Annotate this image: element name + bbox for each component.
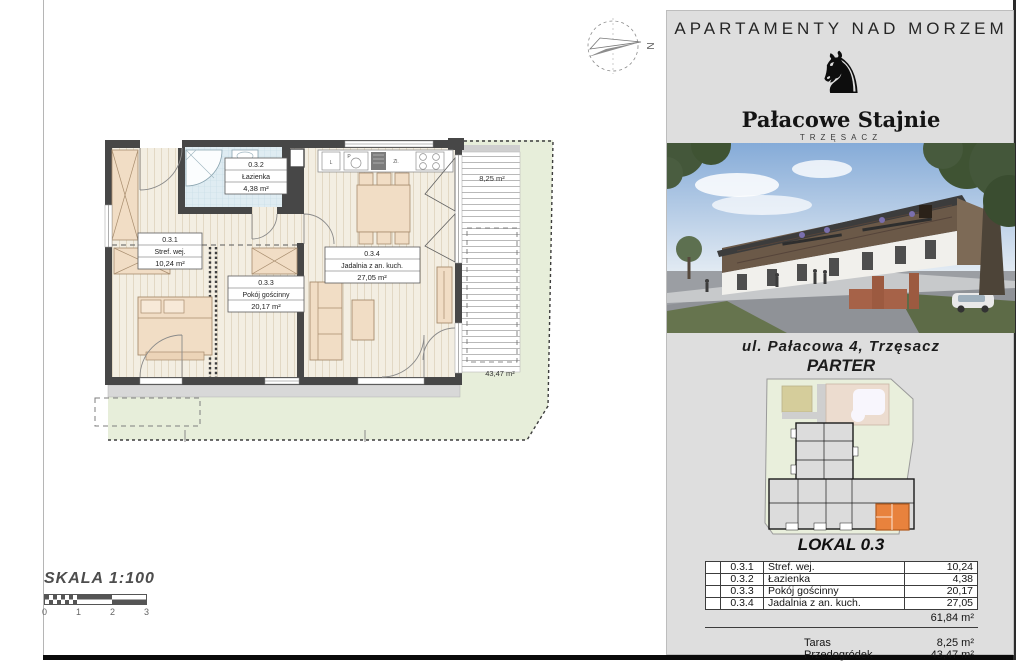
room-name: Stref. wej. (154, 249, 185, 256)
site-plan (756, 375, 921, 535)
siteplan-road-h (782, 412, 826, 419)
extra-label: Taras (804, 637, 937, 649)
room-label-0-3-1: 0.3.1 Stref. wej. 10,24 m² (138, 233, 202, 269)
project-title: APARTAMENTY NAD MORZEM (667, 19, 1015, 39)
outdoor-areas: Taras 8,25 m² Przedogródek 43,47 m² (705, 637, 978, 661)
row-name: Jadalnia z an. kuch. (763, 597, 905, 610)
room-area: 4,38 m² (243, 184, 269, 193)
dining-set (357, 173, 410, 244)
kitchen-counter: L P Zl. (318, 150, 453, 172)
extra-value: 43,47 m² (931, 649, 978, 661)
terrace-area-label: 8,25 m² (479, 174, 505, 183)
room-name: Jadalnia z an. kuch. (341, 263, 403, 270)
scale-seg-1 (45, 595, 78, 604)
row-no: 0.3.4 (720, 597, 764, 610)
scale-tick: 2 (110, 607, 115, 617)
room-no: 0.3.3 (258, 280, 274, 287)
shaft-niche (290, 149, 304, 167)
siteplan-lawn-square (782, 386, 812, 412)
row-value: 27,05 (904, 597, 978, 610)
scale-tick: 0 (42, 607, 47, 617)
compass-icon: N (588, 18, 655, 74)
coffee-table (352, 300, 374, 340)
brand-city: TRZĘSACZ (667, 133, 1015, 142)
room-name: Pokój gościnny (242, 292, 290, 299)
room-area: 20,17 m² (251, 302, 281, 311)
room-name: Łazienka (242, 174, 270, 181)
kitchen-label-l: L (330, 160, 333, 166)
terrace-step (458, 145, 520, 152)
total-area: 61,84 m² (705, 610, 978, 628)
kitchen-label-zl: Zl. (393, 159, 399, 165)
siteplan-pool-building (826, 384, 889, 425)
room-no: 0.3.2 (248, 162, 264, 169)
room-label-0-3-3: 0.3.3 Pokój gościnny 20,17 m² (228, 276, 304, 312)
walkway (108, 385, 460, 397)
room-no: 0.3.4 (364, 251, 380, 258)
scale-bar (44, 594, 147, 605)
row-spacer (705, 597, 721, 610)
room-area: 27,05 m² (357, 273, 387, 282)
sideboard (437, 267, 452, 323)
brand-name: Pałacowe Stajnie (667, 107, 1015, 132)
scale-tick: 1 (76, 607, 81, 617)
scale-seg-2 (78, 595, 112, 604)
compass-north-letter: N (644, 42, 655, 49)
room-no: 0.3.1 (162, 237, 178, 244)
scale-ticks: 0 1 2 3 (42, 607, 149, 617)
address: ul. Pałacowa 4, Trzęsacz (667, 338, 1015, 355)
extra-label: Przedogródek (804, 649, 931, 661)
unit-label: LOKAL 0.3 (667, 535, 1015, 555)
extra-row: Taras 8,25 m² (705, 637, 978, 649)
room-label-0-3-2: 0.3.2 Łazienka 4,38 m² (225, 158, 287, 194)
floor-label: PARTER (667, 356, 1015, 376)
room-label-0-3-4: 0.3.4 Jadalnia z an. kuch. 27,05 m² (325, 247, 420, 283)
facade-sign (919, 205, 932, 218)
info-panel: APARTAMENTY NAD MORZEM ♞ Pałacowe Stajni… (666, 10, 1014, 655)
room-area: 10,24 m² (155, 259, 185, 268)
garden-area-label: 43,47 m² (485, 369, 515, 378)
floor-plan: 8,25 m² 43,47 m² (0, 0, 665, 662)
extra-row: Przedogródek 43,47 m² (705, 649, 978, 661)
building-photo (667, 143, 1015, 333)
area-table: 0.3.1 Stref. wej. 10,24 0.3.2 Łazienka 4… (705, 562, 978, 661)
scale-block: SKALA 1:100 0 1 2 3 (44, 570, 164, 617)
extra-value: 8,25 m² (937, 637, 978, 649)
siteplan-highlighted-unit[interactable] (876, 504, 909, 530)
sofa (310, 282, 342, 360)
scale-seg-3 (112, 595, 146, 604)
table-row: 0.3.4 Jadalnia z an. kuch. 27,05 (705, 597, 978, 610)
knight-logo-icon: ♞ (667, 37, 1015, 109)
scale-tick: 3 (144, 607, 149, 617)
scale-title: SKALA 1:100 (44, 570, 164, 588)
